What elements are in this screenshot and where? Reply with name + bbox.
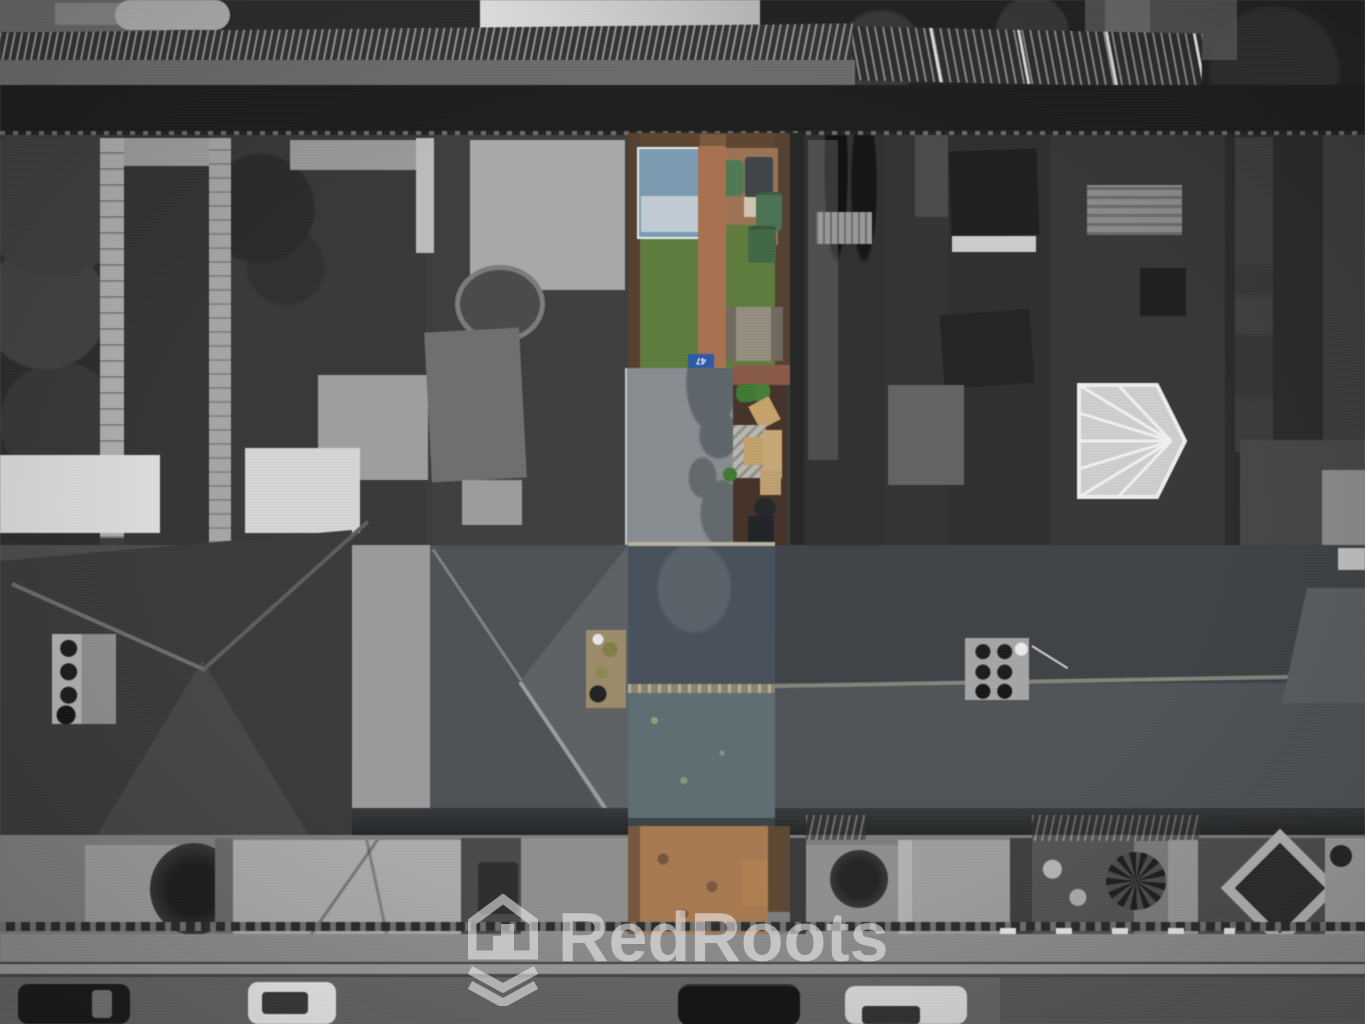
white-conservatory-roof-1 bbox=[0, 455, 160, 533]
kerb-band bbox=[0, 964, 1365, 974]
ribbed-shed-right bbox=[888, 385, 964, 485]
garden-storage-box bbox=[745, 157, 773, 197]
corrugated-shed bbox=[424, 328, 527, 483]
roof-vent-block bbox=[55, 3, 120, 25]
hedge-row bbox=[1235, 137, 1273, 452]
corrugated-roof-strip-right bbox=[851, 26, 1202, 87]
highlight-roof-eave-shadow bbox=[628, 818, 775, 826]
palm-plant bbox=[1106, 852, 1166, 910]
white-conservatory-roof-2 bbox=[245, 448, 360, 533]
parked-suv-dark bbox=[678, 984, 800, 1024]
front-yard-bin bbox=[478, 862, 518, 914]
highlight-roof-front-slope bbox=[628, 693, 775, 818]
bistro-table-black bbox=[754, 498, 776, 518]
highlight-garden-shed-panel bbox=[641, 196, 701, 232]
parked-car-dark-1 bbox=[18, 984, 130, 1024]
terrace-roof-right-rear bbox=[775, 545, 1365, 683]
front-yard-paved bbox=[912, 840, 1010, 935]
garden-3-patio bbox=[290, 140, 425, 170]
extension-flat-roof bbox=[625, 368, 735, 545]
decking-plant-2 bbox=[722, 462, 738, 487]
conservatory-fan-roof bbox=[1073, 377, 1189, 505]
garden-chair-bottom bbox=[760, 470, 781, 495]
solar-panel-shed-1 bbox=[949, 148, 1040, 237]
front-wall-right-2 bbox=[1168, 840, 1198, 935]
hip-house-chimney bbox=[52, 634, 116, 724]
highlight-roof-ridge bbox=[628, 684, 775, 693]
front-wall-left bbox=[215, 838, 233, 933]
eave-shadow-left bbox=[352, 808, 628, 838]
small-light-shed bbox=[462, 480, 522, 525]
water-tank bbox=[115, 0, 230, 30]
highlight-front-wall-left bbox=[628, 826, 640, 936]
roof-junction-shadow bbox=[1238, 545, 1245, 813]
street-dark-right bbox=[1000, 977, 1365, 1024]
decking-rear-wall bbox=[733, 365, 790, 385]
front-wall-light bbox=[898, 840, 912, 935]
highlight-roof-rear-slope bbox=[628, 546, 775, 686]
storage-bin-black bbox=[748, 516, 774, 542]
house-number-board: 47 bbox=[688, 354, 714, 368]
side-passage bbox=[352, 545, 430, 838]
highlight-front-gate bbox=[742, 860, 768, 906]
wheelie-bin-2 bbox=[748, 226, 776, 263]
rear-alley bbox=[0, 85, 1365, 135]
party-wall-strip bbox=[790, 133, 804, 545]
garden-2-patio bbox=[124, 138, 209, 166]
front-pot-right bbox=[1330, 845, 1352, 867]
bay-roof-strip-2 bbox=[1032, 815, 1200, 841]
garden-right-4-rug bbox=[1087, 185, 1182, 235]
highlight-garden-path bbox=[698, 146, 726, 370]
alley-edge-rubble bbox=[0, 60, 855, 88]
aerial-photo-scene: 47 bbox=[0, 0, 1365, 1024]
highlight-front-fence-right bbox=[768, 826, 790, 912]
garden-right-1-rug bbox=[816, 212, 872, 244]
bay-roof-strip-1 bbox=[806, 815, 866, 840]
party-chimney-moss bbox=[586, 630, 626, 708]
picnic-bench bbox=[726, 307, 783, 361]
right-roof-chimney bbox=[965, 638, 1029, 700]
solar-panel-shed-2 bbox=[940, 309, 1035, 389]
garden-path-light bbox=[416, 138, 434, 253]
garden-wall-2 bbox=[209, 138, 231, 543]
car-2-glass bbox=[262, 992, 308, 1014]
solar-shed-1-sill bbox=[952, 236, 1036, 252]
front-garden-bush-right bbox=[830, 850, 888, 908]
aerial-photo: 47 bbox=[0, 0, 1365, 1024]
right-edge-light-ground bbox=[1322, 470, 1365, 545]
front-yard-concrete bbox=[233, 840, 461, 935]
car-1-windscreen bbox=[92, 990, 112, 1018]
garden-table-set bbox=[1140, 268, 1186, 316]
garden-table bbox=[744, 437, 763, 465]
car-4-glass bbox=[862, 1006, 920, 1024]
skylight bbox=[1338, 548, 1365, 570]
garden-right-1-grid-path bbox=[808, 140, 838, 460]
